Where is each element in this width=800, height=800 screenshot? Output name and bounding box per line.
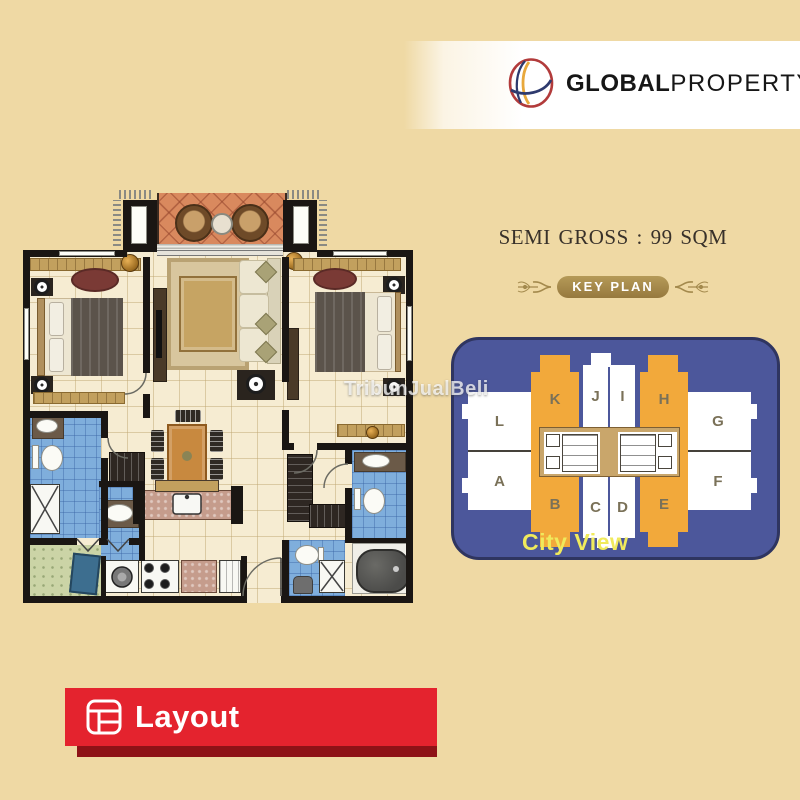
wall: [101, 458, 108, 545]
kitchen-counter-2: [181, 560, 217, 593]
window: [333, 251, 387, 256]
washing-machine: [105, 560, 139, 593]
tv: [156, 310, 162, 358]
wall: [345, 538, 413, 543]
sink: [362, 454, 390, 468]
layout-tab-shadow: [77, 746, 437, 757]
flourish-left-icon: [516, 277, 552, 297]
core-connector: [531, 427, 539, 477]
ac-grille: [113, 200, 121, 246]
wall: [231, 486, 243, 524]
stove: [141, 560, 179, 593]
unit-J-label: J: [591, 388, 599, 405]
shower: [30, 484, 60, 534]
pillow: [49, 302, 64, 336]
core-room: [546, 434, 560, 447]
unit-I-label: I: [620, 388, 624, 405]
balcony-chair: [175, 204, 213, 242]
toilet-tank: [354, 488, 361, 510]
wall: [99, 538, 107, 545]
mattress-mat: [69, 553, 101, 596]
window: [24, 308, 29, 360]
core-shaft: [600, 432, 618, 474]
balcony-chair: [231, 204, 269, 242]
kitchen-shelf: [155, 480, 219, 492]
dining-chair: [210, 430, 223, 452]
door-knob: [366, 426, 379, 439]
sink: [36, 419, 58, 433]
wall: [23, 250, 30, 603]
unit-H-label: H: [659, 391, 670, 408]
sink: [105, 504, 133, 522]
ac-grille: [119, 190, 153, 199]
kitchen-counter: [140, 490, 232, 520]
toilet-tank: [32, 445, 39, 469]
wall: [101, 556, 106, 596]
watermark: TribunJualBeli: [344, 378, 489, 401]
wall: [101, 411, 108, 438]
bedroom-rug: [313, 268, 357, 290]
stool: [293, 576, 313, 594]
globe-logo-icon: [506, 56, 556, 110]
listing-image: GLOBALPROPERTY SEMI GROSS : 99 SQM KEY P…: [0, 0, 800, 800]
brand-header: GLOBALPROPERTY: [404, 41, 800, 129]
window: [407, 306, 412, 361]
bed-duvet: [71, 298, 123, 376]
dining-chair: [151, 430, 164, 452]
coffee-table: [179, 276, 237, 352]
wall: [345, 450, 352, 464]
wardrobe-shelves: [109, 452, 145, 482]
brand-name-bold: GLOBAL: [566, 70, 670, 97]
unit-I: I: [610, 365, 635, 427]
toilet: [363, 488, 385, 514]
unit-B-label: B: [550, 496, 561, 513]
unit-K-label: K: [550, 391, 561, 408]
toilet: [41, 445, 63, 471]
layout-tab[interactable]: Layout: [65, 688, 437, 746]
table-lamp: [34, 377, 50, 393]
brand-name: GLOBALPROPERTY: [566, 70, 800, 98]
wall: [133, 486, 143, 524]
wall: [317, 443, 413, 450]
balcony-sliding-door: [157, 250, 283, 256]
unit-B: B: [531, 477, 579, 532]
wing-notch: [462, 478, 468, 493]
core-lift-lobby: [562, 434, 598, 472]
bed-headboard: [395, 292, 401, 372]
key-plan-badge: KEY PLAN: [557, 276, 669, 298]
window: [59, 251, 115, 256]
pillar-window: [131, 206, 147, 244]
bedroom-rug: [71, 268, 119, 292]
pillow: [377, 296, 392, 332]
unit-C-label: C: [590, 499, 601, 516]
core-connector: [680, 427, 688, 477]
unit-D-label: D: [617, 499, 628, 516]
unit-G: G: [685, 392, 751, 450]
dining-chair: [210, 458, 223, 480]
dining-chair: [151, 458, 164, 480]
tower-core: [539, 427, 680, 477]
bed-duvet: [315, 292, 365, 372]
wall: [406, 250, 413, 603]
brand-name-light: PROPERTY: [670, 70, 800, 97]
city-view-label: City View: [522, 529, 628, 556]
unit-J: J: [583, 365, 608, 427]
pillow: [49, 338, 64, 372]
core-room: [658, 456, 672, 469]
bed-headboard: [37, 298, 45, 376]
bedroom-bench: [33, 392, 125, 404]
wall: [143, 394, 150, 418]
refrigerator: [219, 560, 241, 593]
pillow: [377, 334, 392, 370]
ac-grille: [319, 200, 327, 246]
wing-notch: [751, 404, 757, 419]
wall: [282, 540, 289, 596]
balcony-table: [211, 213, 233, 235]
key-plan-badge-row: KEY PLAN: [448, 276, 778, 298]
tower-notch: [648, 530, 678, 547]
key-plan-panel: L A G F K J I H B C D E: [451, 337, 780, 560]
dining-chair: [175, 410, 201, 422]
table-lamp: [246, 374, 266, 394]
unit-F: F: [685, 450, 751, 510]
bathtub: [356, 549, 410, 593]
wall: [23, 596, 247, 603]
unit-A: A: [468, 450, 531, 510]
wing-notch: [462, 404, 468, 419]
toilet: [295, 545, 319, 565]
ac-grille: [287, 190, 321, 199]
unit-H: H: [640, 372, 688, 427]
wall: [23, 411, 108, 418]
pillar-window: [293, 206, 309, 244]
key-plan-wing-right: G F: [685, 392, 751, 510]
wall: [282, 443, 294, 450]
unit-E: E: [640, 477, 688, 532]
key-plan-wing-left: L A: [468, 392, 531, 510]
wall: [281, 596, 413, 603]
layout-icon: [85, 698, 123, 736]
unit-K: K: [531, 372, 579, 427]
wall: [345, 488, 352, 538]
flourish-right-icon: [674, 277, 710, 297]
wardrobe-shelves: [309, 504, 347, 528]
core-lift-lobby: [620, 434, 656, 472]
wing-notch: [751, 478, 757, 493]
table-lamp: [386, 277, 402, 293]
core-room: [546, 456, 560, 469]
wall: [282, 257, 289, 382]
semi-gross-label: SEMI GROSS : 99 SQM: [448, 225, 778, 250]
core-room: [658, 434, 672, 447]
shower: [319, 560, 345, 593]
layout-tab-label: Layout: [135, 699, 240, 735]
table-lamp: [34, 279, 50, 295]
wall: [241, 556, 247, 596]
unit-E-label: E: [659, 496, 669, 513]
wall: [23, 538, 77, 545]
wall: [143, 257, 150, 373]
